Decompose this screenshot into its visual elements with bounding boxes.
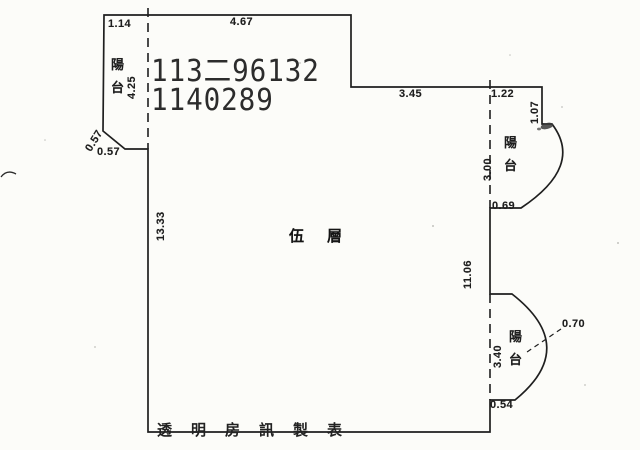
stamp-number-line2: 1140289 <box>151 86 274 115</box>
dim-mid-top-width: 3.45 <box>399 89 422 100</box>
stray-mark <box>1 172 16 177</box>
footer-maker-label: 透明房訊製表 <box>157 419 361 440</box>
floor-label: 伍 層 <box>289 231 346 242</box>
dim-lower-balcony-bottom: 0.54 <box>490 400 513 411</box>
dim-right-top-width: 1.22 <box>491 89 514 100</box>
ink-smudge-dot <box>537 128 541 131</box>
balcony-label-top-right: 陽 台 <box>504 131 517 177</box>
dim-lower-balcony-depth: 0.70 <box>562 319 585 330</box>
dim-left-balcony-height: 4.25 <box>127 76 138 99</box>
dim-right-top-height: 1.07 <box>530 101 541 124</box>
dim-top-width: 4.67 <box>230 17 253 28</box>
balcony-label-bottom-right: 陽 台 <box>509 325 522 371</box>
dim-right-balcony-height: 3.00 <box>483 158 494 181</box>
floor-plan-drawing <box>0 0 640 450</box>
dim-lower-balcony-height: 3.40 <box>493 345 504 368</box>
balcony-label-top-left: 陽 台 <box>111 53 124 99</box>
dim-top-left-width: 1.14 <box>108 19 131 30</box>
dim-left-step: 0.57 <box>97 147 120 158</box>
dim-left-height: 13.33 <box>156 211 167 241</box>
dim-right-balcony-bottom: 0.69 <box>492 201 515 212</box>
stamp-number-line1: 113二96132 <box>151 57 320 86</box>
dim-right-height: 11.06 <box>463 260 474 289</box>
floor-plan-page: 113二96132 1140289 伍 層 陽 台 陽 台 陽 台 1.14 4… <box>0 0 640 450</box>
